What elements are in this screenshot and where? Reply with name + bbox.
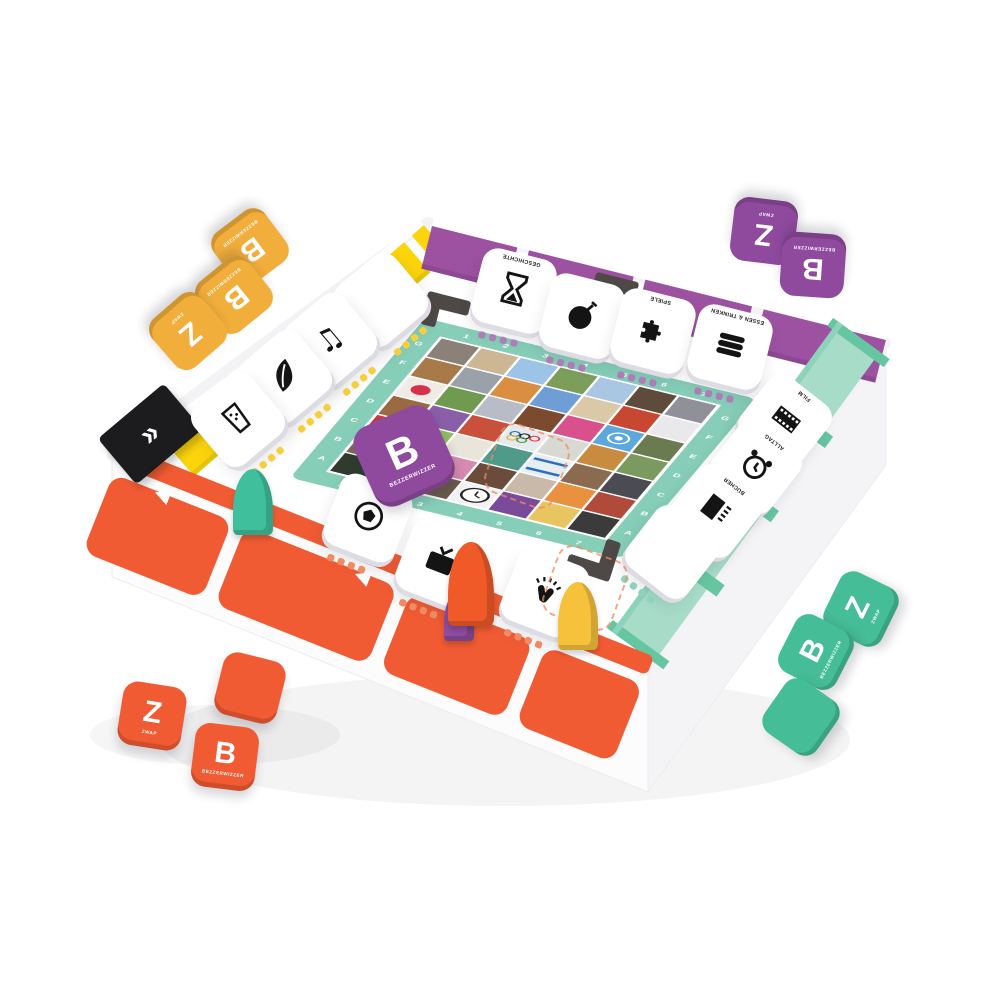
category-tile-puzzle: SPIELE <box>607 285 699 377</box>
tile-letter: Z <box>174 316 208 351</box>
bomb-icon <box>558 291 605 342</box>
slot-dots <box>478 331 519 347</box>
tile-letter: Z <box>840 593 875 623</box>
slot-dots <box>393 326 428 357</box>
category-label: ESSEN & TRINKEN <box>700 304 775 328</box>
letter-tile-orange-z: ZZWAP <box>115 679 188 752</box>
slot-dots <box>326 553 366 574</box>
bezzerwizzer-game-photo: ◀◀ 11223344556677AABBCCDDEEFFGG » GESCHI… <box>0 0 1000 1000</box>
category-tile-sandwich: ESSEN & TRINKEN <box>684 301 776 393</box>
slot-dots <box>342 366 377 397</box>
empty-slot-outline <box>480 419 575 514</box>
quote-icon: » <box>133 416 168 453</box>
pawn-orange <box>448 542 494 626</box>
category-label: GESCHICHTE <box>484 248 559 272</box>
slot-dots <box>546 356 587 372</box>
drink-glass-icon <box>210 391 267 448</box>
quote-card: » <box>98 383 202 484</box>
letter-tile-orange-b: BBEZZERWIZZER <box>189 721 260 792</box>
slot-dots <box>694 387 735 403</box>
slot-dots <box>617 371 658 387</box>
category-label: SPIELE <box>623 288 698 312</box>
letter-tile-purple-b: BBEZZERWIZZER <box>779 231 847 299</box>
tile-brand-label: ZWAP <box>141 728 157 735</box>
sandwich-icon <box>706 322 753 373</box>
slot-dots <box>503 628 543 649</box>
puzzle-icon <box>629 306 676 357</box>
tile-letter: B <box>801 253 825 284</box>
letter-tile-orange-blank <box>211 649 289 727</box>
tile-letter: Z <box>141 696 164 728</box>
tile-letter: B <box>213 737 238 769</box>
tile-letter: Z <box>753 218 775 250</box>
slot-dots <box>297 403 332 434</box>
pawn-green <box>233 469 273 535</box>
hourglass-icon <box>490 266 537 317</box>
slot-dots <box>398 598 438 619</box>
